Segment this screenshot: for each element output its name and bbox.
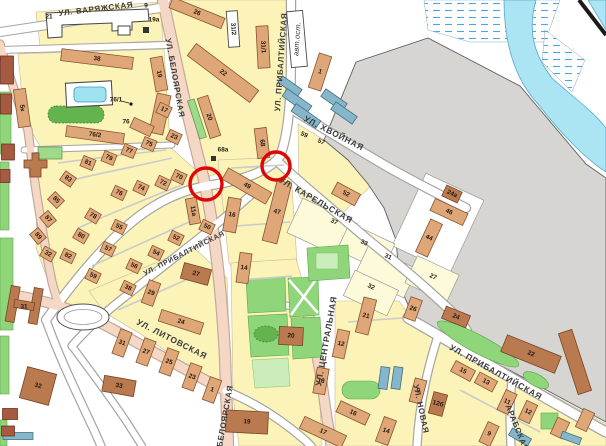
building-footprint [0, 170, 10, 183]
building-number: 9 [144, 3, 148, 10]
building-footprint [3, 409, 18, 420]
monument-icon [143, 27, 149, 33]
building-number: 38 [93, 55, 101, 63]
swimming-pool [74, 87, 106, 102]
building-number: 20 [287, 332, 295, 339]
building-number: 68а [218, 147, 229, 154]
building-number: 14 [240, 264, 248, 272]
monument-icon [211, 156, 216, 161]
building-footprint [2, 144, 15, 160]
building-number: 19 [243, 418, 251, 425]
building-number: 19а [149, 17, 160, 24]
building-number: 76/1 [110, 97, 123, 104]
building-number: 31/1 [259, 41, 267, 54]
building-number: 31 [20, 304, 28, 311]
address-dot-icon [129, 102, 132, 105]
building-number: 76 [122, 119, 130, 126]
stadium-track [57, 304, 109, 330]
public-building-outline [118, 26, 130, 35]
building-number: 31/2 [229, 23, 237, 36]
building-number: 21 [45, 14, 53, 21]
city-map[interactable]: 21919а2631/231/12219206868а3876/17676/25… [0, 0, 606, 446]
building-footprint [1, 94, 12, 114]
building-footprint [2, 426, 15, 436]
building-number: 68 [258, 139, 266, 147]
building-footprint [1, 56, 14, 84]
